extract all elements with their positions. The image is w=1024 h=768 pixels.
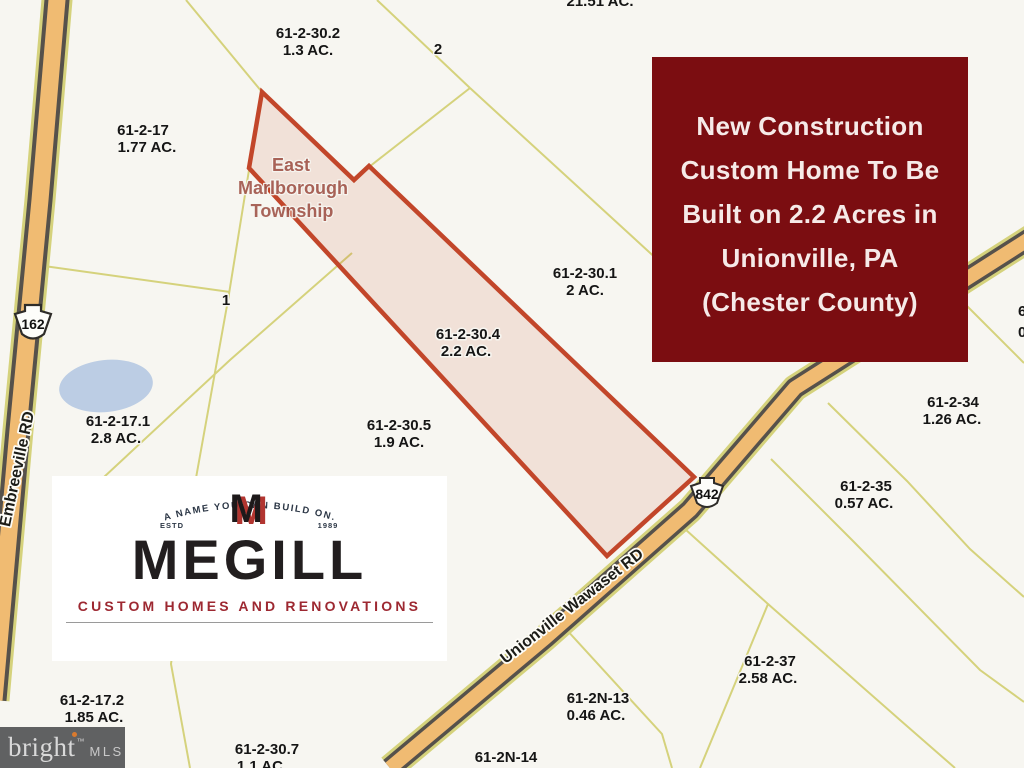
parcel-label: 61-2-30.7 [235, 741, 299, 758]
bright-text: bright [8, 732, 76, 762]
marketing-banner: New Construction Custom Home To Be Built… [652, 57, 968, 362]
megill-tagline: CUSTOM HOMES AND RENOVATIONS [52, 598, 447, 614]
township-line: Marlborough [238, 178, 348, 198]
partial-top-label: 21.51 AC. [567, 0, 634, 10]
acreage-label: 1.9 AC. [374, 434, 424, 451]
trademark-symbol: ™ [77, 737, 85, 746]
partial-right-label: 6 [1018, 303, 1024, 320]
parcel-label: 61-2-30.5 [367, 417, 431, 434]
parcel-label: 61-2-17.1 [86, 413, 150, 430]
parcel-label: 61-2-30.4 [436, 326, 501, 343]
acreage-label: 2.2 AC. [441, 343, 491, 360]
acreage-label: 1.77 AC. [118, 139, 177, 156]
megill-monogram: M M [52, 488, 447, 532]
parcel-label: 61-2-34 [927, 394, 979, 411]
acreage-label: 1.85 AC. [65, 709, 124, 726]
mls-text: MLS [90, 744, 124, 759]
listing-image: East Marlborough Township 61-2-30.2 1.3 … [0, 0, 1024, 768]
parcel-label: 61-2-37 [744, 653, 796, 670]
acreage-label: 1.1 AC. [237, 758, 287, 768]
acreage-label: 2 AC. [566, 282, 604, 299]
acreage-label: 1.3 AC. [283, 42, 333, 59]
township-line: Township [251, 201, 334, 221]
route-number: 842 [695, 486, 719, 502]
lot-number: 1 [222, 292, 230, 309]
lot-number: 2 [434, 41, 442, 58]
brightmls-watermark: bright ™ MLS [0, 727, 125, 768]
parcel-label: 61-2N-13 [567, 690, 630, 707]
banner-line: Custom Home To Be [652, 148, 968, 192]
parcel-label: 61-2-17.2 [60, 692, 124, 709]
bright-wordmark: bright [8, 731, 76, 764]
township-line: East [272, 155, 310, 175]
acreage-label: 2.8 AC. [91, 430, 141, 447]
banner-line: Built on 2.2 Acres in [652, 192, 968, 236]
banner-line: (Chester County) [652, 280, 968, 324]
megill-wordmark: MEGILL [52, 532, 447, 588]
parcel-label: 61-2-35 [840, 478, 892, 495]
acreage-label: 2.58 AC. [739, 670, 798, 687]
parcel-label: 61-2N-14 [475, 749, 538, 766]
parcel-label: 61-2-30.2 [276, 25, 340, 42]
megill-logo: A NAME YOU CAN BUILD ON. ESTD 1989 M M M… [52, 476, 447, 661]
monogram-m-black: M [230, 488, 263, 530]
acreage-label: 0.46 AC. [567, 707, 626, 724]
banner-line: New Construction [652, 104, 968, 148]
route-number: 162 [21, 316, 45, 332]
parcel-label: 61-2-17 [117, 122, 169, 139]
acreage-label: 1.26 AC. [923, 411, 982, 428]
banner-line: Unionville, PA [652, 236, 968, 280]
acreage-label: 0.57 AC. [835, 495, 894, 512]
partial-right-label: 0 [1018, 324, 1024, 341]
megill-rule [66, 622, 433, 623]
parcel-label: 61-2-30.1 [553, 265, 617, 282]
